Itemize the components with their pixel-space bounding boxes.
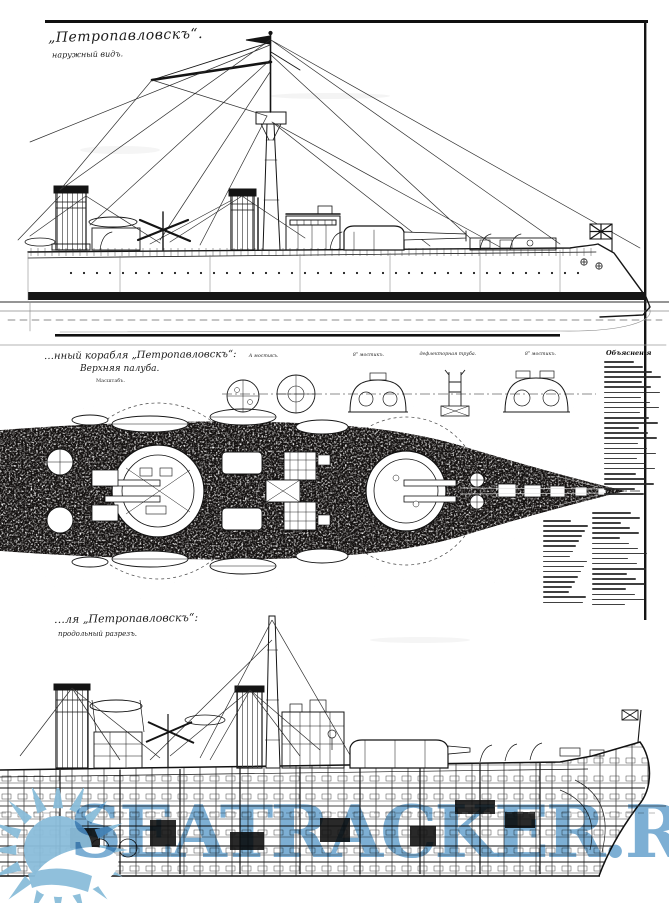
cross-section-label-3: дефлекторная труба. bbox=[419, 351, 476, 357]
legend-item-line bbox=[604, 376, 661, 378]
legend-item-line bbox=[604, 432, 648, 434]
legend-item-line bbox=[604, 443, 638, 445]
legend-item-line bbox=[543, 561, 587, 563]
legend-item-line bbox=[604, 473, 636, 475]
legend-column-2 bbox=[592, 512, 647, 609]
cross-section-label-1: А мостикъ. bbox=[249, 353, 279, 359]
side-view-subtitle: наружный видъ. bbox=[52, 49, 123, 59]
legend-item-line bbox=[592, 517, 640, 519]
legend-item-line bbox=[592, 548, 638, 550]
legend-item-line bbox=[604, 381, 642, 383]
legend-item-line bbox=[604, 392, 660, 394]
legend-item-line bbox=[604, 463, 646, 465]
legend-item-line bbox=[604, 366, 643, 368]
legend-item-line bbox=[543, 530, 585, 532]
plan-view-subtitle: Верхняя палуба. bbox=[80, 364, 159, 374]
legend-item-line bbox=[604, 488, 635, 490]
legend-item-line bbox=[604, 412, 640, 414]
legend-item-line bbox=[543, 602, 583, 604]
legend-item-line bbox=[592, 583, 645, 585]
legend-item-line bbox=[592, 543, 629, 545]
legend-item-line bbox=[592, 568, 646, 570]
legend-item-line bbox=[604, 386, 651, 388]
legend-item-line bbox=[604, 437, 657, 439]
plan-view-title: …нный корабля „Петропавловскъ“: bbox=[44, 349, 237, 362]
legend-item-line bbox=[604, 422, 658, 424]
legend-item-line bbox=[604, 402, 650, 404]
cross-section-label-2: 8ʺ мостикъ. bbox=[353, 352, 384, 358]
section-topside bbox=[20, 616, 641, 768]
legend-item-line bbox=[604, 371, 652, 373]
legend-item-line bbox=[592, 599, 644, 601]
legend-item-line bbox=[592, 527, 630, 529]
waterline-lines bbox=[0, 302, 669, 345]
legend-item-line bbox=[592, 604, 625, 606]
legend-item-line bbox=[592, 578, 636, 580]
legend-item-line bbox=[592, 573, 627, 575]
legend-item-line bbox=[543, 525, 588, 527]
side-elevation-view bbox=[0, 31, 669, 345]
section-view-subtitle: продольный разрезъ. bbox=[58, 630, 137, 638]
legend-item-line bbox=[604, 448, 647, 450]
ship-drawing-svg bbox=[0, 0, 669, 900]
legend-item-line bbox=[543, 556, 570, 558]
legend-item-line bbox=[592, 512, 631, 514]
legend-item-line bbox=[543, 571, 581, 573]
legend-item-line bbox=[592, 563, 637, 565]
legend-item-line bbox=[604, 493, 644, 495]
legend-item-line bbox=[543, 540, 579, 542]
legend-item-line bbox=[592, 553, 647, 555]
legend-item-line bbox=[604, 458, 637, 460]
legend-item-line bbox=[604, 468, 655, 470]
longitudinal-section-view bbox=[0, 616, 666, 880]
legend-item-line bbox=[543, 581, 575, 583]
legend-item-line bbox=[592, 532, 639, 534]
legend-item-line bbox=[543, 551, 573, 553]
legend-title: Объясненія bbox=[606, 349, 651, 357]
legend-item-line bbox=[604, 427, 639, 429]
hull-profile bbox=[28, 244, 650, 317]
section-view-title: …ля „Петропавловскъ“: bbox=[54, 611, 198, 626]
legend-item-line bbox=[592, 558, 628, 560]
legend-item-line bbox=[543, 535, 582, 537]
legend-item-line bbox=[543, 591, 569, 593]
legend-item-line bbox=[543, 576, 578, 578]
legend-item-line bbox=[543, 520, 571, 522]
fore-mast bbox=[152, 31, 300, 250]
funnels bbox=[52, 186, 258, 250]
legend-item-line bbox=[604, 417, 649, 419]
legend-item-line bbox=[592, 588, 626, 590]
legend-item-line bbox=[543, 596, 586, 598]
cross-section-label-4: 8ʺ мостикъ. bbox=[525, 351, 556, 357]
legend-item-line bbox=[604, 407, 659, 409]
bow-eagle-ornaments bbox=[581, 259, 602, 269]
legend-item-line bbox=[592, 522, 621, 524]
detail-cross-sections bbox=[222, 370, 596, 416]
naval-jack-flag bbox=[590, 224, 612, 252]
legend-item-line bbox=[604, 478, 645, 480]
legend-item-line bbox=[604, 453, 656, 455]
legend-item-line bbox=[604, 361, 634, 363]
plan-view-scale-note: Масштабъ. bbox=[96, 378, 125, 384]
legend-item-line bbox=[543, 586, 572, 588]
legend-item-line bbox=[604, 483, 654, 485]
legend-column-3 bbox=[543, 520, 588, 607]
legend-item-line bbox=[543, 566, 584, 568]
legend-column-1 bbox=[604, 361, 661, 499]
legend-item-line bbox=[592, 594, 635, 596]
scanned-blueprint-page: „Петропавловскъ“. наружный видъ. …нный к… bbox=[0, 0, 669, 900]
boat-booms bbox=[138, 212, 190, 250]
main-gun-turret bbox=[344, 226, 466, 250]
legend-item-line bbox=[604, 397, 641, 399]
legend-item-line bbox=[592, 537, 620, 539]
legend-item-line bbox=[543, 545, 576, 547]
